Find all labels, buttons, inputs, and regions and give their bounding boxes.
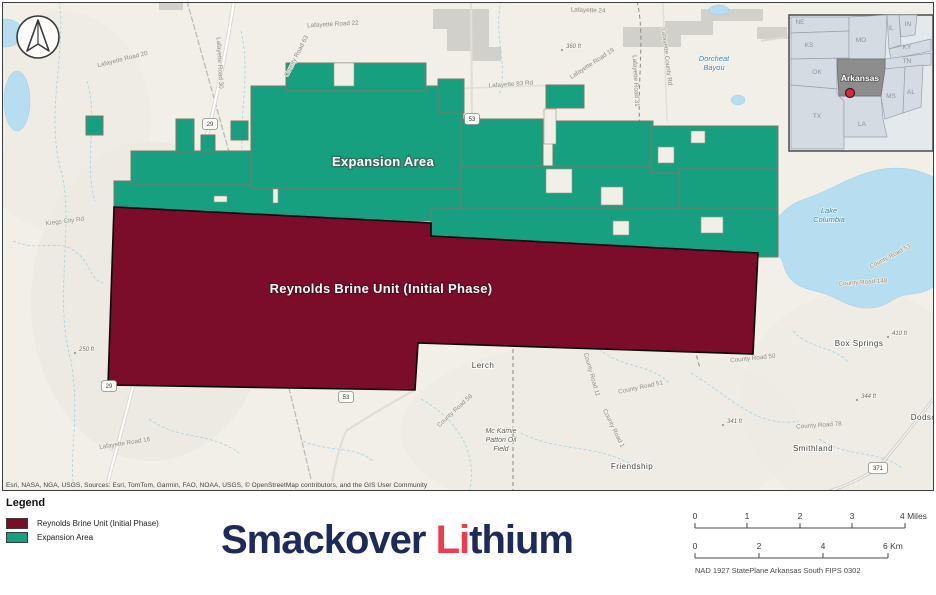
elev-label: 360 ft — [566, 44, 581, 50]
svg-text:371: 371 — [873, 466, 884, 472]
elevation-dot — [856, 399, 858, 401]
map: Lafayette Road 20Lafayette Road 30Lafaye… — [2, 2, 934, 491]
legend-item: Reynolds Brine Unit (Initial Phase) — [6, 518, 159, 529]
inset-state-label: AL — [907, 89, 915, 96]
svg-text:53: 53 — [343, 395, 350, 401]
elevation-dot — [74, 352, 76, 354]
highway-shield: 53 — [465, 114, 480, 125]
state-il — [887, 15, 901, 49]
legend-label: Reynolds Brine Unit (Initial Phase) — [37, 519, 159, 528]
legend-item: Expansion Area — [6, 532, 159, 543]
state-la — [839, 96, 887, 137]
elevation-dot — [722, 424, 724, 426]
highway-shield: 29 — [203, 119, 218, 130]
legend-items: Reynolds Brine Unit (Initial Phase)Expan… — [6, 518, 159, 543]
area-title-label: Reynolds Brine Unit (Initial Phase) — [270, 281, 493, 296]
elev-label: 344 ft — [861, 394, 876, 400]
place-label: Box Springs — [835, 339, 884, 348]
inset-arkansas-label: Arkansas — [841, 73, 880, 83]
elev-label: 341 ft — [727, 419, 742, 425]
page: Lafayette Road 20Lafayette Road 30Lafaye… — [0, 0, 936, 595]
scalebar-tick-label: 0 — [693, 541, 698, 551]
legend: Legend Reynolds Brine Unit (Initial Phas… — [6, 497, 159, 546]
map-canvas: Lafayette Road 20Lafayette Road 30Lafaye… — [3, 3, 933, 490]
scalebar-tick-label: 4 Miles — [900, 511, 927, 521]
scalebar-tick-label: 1 — [745, 511, 750, 521]
scalebar-tick-label: 6 Km — [883, 541, 903, 551]
svg-text:29: 29 — [207, 122, 214, 128]
place-label: Friendship — [611, 462, 653, 471]
highway-shield: 29 — [102, 381, 117, 392]
logo-text-li-accent: Li — [436, 518, 470, 562]
scalebar-tick-label: 2 — [757, 541, 762, 551]
logo-text-thium: thium — [469, 518, 573, 562]
legend-swatch — [6, 532, 28, 543]
logo-text-smackover: Smackover — [221, 518, 436, 562]
scalebar-tick-label: 2 — [798, 511, 803, 521]
company-logo: Smackover Lithium — [221, 520, 573, 560]
place-label: Smithland — [793, 444, 833, 453]
inset-state-label: NE — [795, 19, 805, 26]
scalebar-tick-label: 4 — [821, 541, 826, 551]
inset-state-label: IN — [905, 21, 912, 28]
inset-state-label: OK — [812, 69, 822, 76]
datum-note: NAD 1927 StatePlane Arkansas South FIPS … — [695, 566, 861, 575]
highway-shield: 371 — [869, 463, 888, 474]
legend-swatch — [6, 518, 28, 529]
inset-state-label: KY — [903, 44, 912, 51]
svg-text:53: 53 — [469, 117, 476, 123]
inset-locator-map — [789, 15, 933, 151]
inset-state-label: MS — [886, 93, 896, 100]
inset-state-label: MO — [856, 37, 866, 44]
inset-state-label: IL — [888, 25, 894, 32]
inset-state-label: TN — [903, 58, 912, 65]
north-arrow-icon — [17, 16, 59, 58]
place-label: Lerch — [472, 361, 495, 370]
inset-state-label: LA — [858, 121, 867, 128]
inset-state-label: KS — [805, 42, 814, 49]
elev-label: 250 ft — [78, 347, 94, 353]
svg-text:29: 29 — [106, 384, 113, 390]
project-location-dot — [846, 89, 855, 98]
elevation-dot — [887, 336, 889, 338]
legend-label: Expansion Area — [37, 533, 93, 542]
scalebar-tick-label: 0 — [693, 511, 698, 521]
elev-label: 410 ft — [892, 331, 907, 337]
map-attribution: Esri, NASA, NGA, USGS, Sources: Esri, To… — [3, 481, 430, 490]
area-title-label: Expansion Area — [332, 154, 434, 169]
highway-shield: 53 — [339, 392, 354, 403]
place-label: Dodson — [911, 413, 933, 422]
state-mo — [849, 15, 887, 59]
road-label: Lafayette 24 — [571, 6, 606, 14]
scale-bars: 01234 Miles0246 Km — [686, 502, 936, 566]
legend-title: Legend — [6, 497, 159, 509]
inset-state-label: TX — [813, 113, 822, 120]
elevation-dot — [561, 49, 563, 51]
scalebar-tick-label: 3 — [850, 511, 855, 521]
state-ks — [791, 31, 849, 59]
